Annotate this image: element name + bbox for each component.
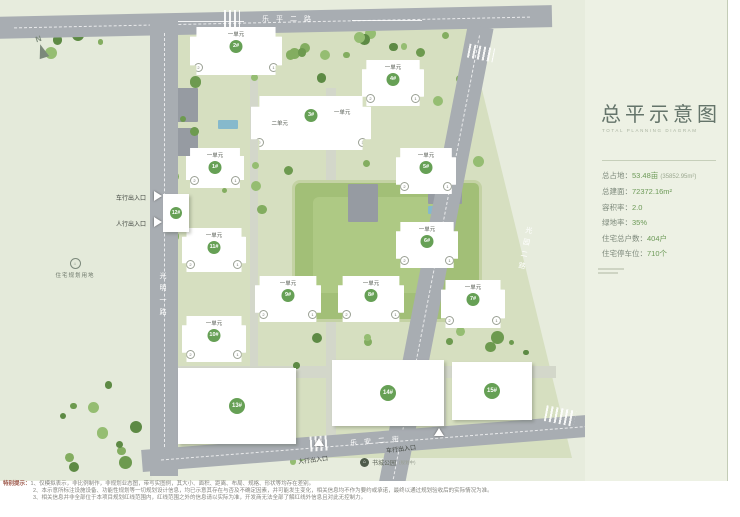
stat-row: 容积率：2.0: [602, 204, 724, 212]
unit-entry-dot: 2: [186, 260, 195, 269]
unit-label: 一单元: [255, 279, 321, 287]
fine-print-line: [598, 268, 624, 270]
stat-row: 绿地率：35%: [602, 219, 724, 227]
building-6: 一单元6#21: [396, 222, 458, 268]
unit-entry-dot: 2: [400, 182, 409, 191]
unit-label: 一单元: [441, 283, 505, 291]
building-15: 15#: [452, 362, 532, 420]
footnote-line: 特别提示：1、仅模拟表示，非比例制作，非规划业态图，带写实图例，其大小、面积、距…: [3, 481, 740, 488]
building-number-badge: 1#: [209, 161, 222, 174]
building-number-badge: 12#: [170, 207, 182, 219]
building-14: 14#: [332, 360, 444, 426]
entrance-arrow-icon: [154, 191, 162, 201]
footnotes: 特别提示：1、仅模拟表示，非比例制作，非规划业态图，带写实图例，其大小、面积、距…: [0, 481, 740, 517]
park-label: ⌂ 书城公园 (规划中): [360, 458, 416, 467]
unit-entry-dot: 1: [233, 350, 242, 359]
stat-value: 35%: [632, 218, 647, 227]
tree-icon: [119, 456, 132, 469]
unit-entry-dot: 2: [445, 316, 454, 325]
entrance-arrow-icon: [434, 428, 444, 436]
stat-label: 住宅停车位: [602, 249, 640, 258]
tree-icon: [473, 156, 484, 167]
tree-icon: [60, 413, 66, 419]
clubhouse-building: [348, 184, 378, 222]
road-label-left: 光明一路: [157, 272, 167, 320]
unit-entry-dot: 1: [492, 316, 501, 325]
building-number-badge: 6#: [421, 235, 434, 248]
stat-row: 总占地：53.48亩 (35852.95m²): [602, 172, 724, 180]
building-number-badge: 9#: [282, 289, 295, 302]
unit-label: 一单元: [182, 319, 246, 327]
tree-icon: [446, 338, 453, 345]
road-label-top: 乐平二路: [262, 14, 318, 24]
building-number-badge: 3#: [305, 109, 318, 122]
tree-icon: [98, 39, 104, 45]
stat-label: 容积率: [602, 203, 625, 212]
tree-icon: [180, 116, 186, 122]
stat-row: 总建面：72372.16m²: [602, 188, 724, 196]
stat-extra: (35852.95m²): [660, 174, 696, 180]
stat-value: 710个: [647, 249, 667, 258]
unit-label: 一单元: [338, 279, 404, 287]
entrance-arrow-icon: [154, 217, 162, 227]
unit-entry-dot: 1: [233, 260, 242, 269]
unit-entry-dot: 2: [366, 94, 375, 103]
tree-icon: [97, 427, 109, 439]
tree-icon: [284, 166, 293, 175]
plot-icon: ⌂: [70, 258, 81, 269]
entrance-arrow-icon: [314, 438, 324, 446]
stats-list: 总占地：53.48亩 (35852.95m²)总建面：72372.16m²容积率…: [602, 172, 724, 266]
tree-icon: [320, 50, 330, 60]
unit-entry-dot: 2: [342, 310, 351, 319]
building-number-badge: 15#: [484, 383, 500, 399]
tree-icon: [257, 205, 267, 215]
park-icon: ⌂: [360, 458, 369, 467]
building-number-badge: 4#: [387, 73, 400, 86]
tree-icon: [70, 403, 77, 410]
road-arrow-line: [352, 20, 422, 21]
tree-icon: [401, 43, 408, 50]
stat-row: 住宅停车位：710个: [602, 250, 724, 258]
tree-icon: [130, 421, 142, 433]
unit-label: 一单元: [190, 30, 282, 38]
building-13: 13#: [178, 368, 296, 444]
building-7: 一单元7#21: [441, 280, 505, 328]
stat-value: 53.48亩: [632, 171, 658, 180]
building-number-badge: 14#: [380, 385, 396, 401]
building-number-badge: 7#: [467, 293, 480, 306]
unit-entry-dot: 2: [400, 256, 409, 265]
tree-icon: [491, 331, 504, 344]
unit-label: 一单元: [362, 63, 424, 71]
building-5: 一单元5#21: [396, 148, 456, 194]
stat-value: 72372.16m²: [632, 187, 672, 196]
building-number-badge: 11#: [208, 241, 221, 254]
entrance-label-vehicle-west: 车行出入口: [92, 193, 146, 202]
unit-entry-dot: 1: [445, 256, 454, 265]
building-number-badge: 2#: [230, 40, 243, 53]
panel-subtitle: TOTAL PLANNING DIAGRAM: [602, 128, 698, 133]
unit-entry-dot: 2: [190, 176, 199, 185]
stat-row: 住宅总户数：404户: [602, 235, 724, 243]
stat-label: 总建面: [602, 187, 625, 196]
fine-print-line: [598, 272, 618, 274]
stat-label: 住宅总户数: [602, 234, 640, 243]
unit-entry-dot: 1: [391, 310, 400, 319]
unit-entry-dot: 1: [231, 176, 240, 185]
panel-divider: [602, 160, 716, 161]
building-number-badge: 13#: [229, 398, 245, 414]
building-3: 二单元一单元3#21: [251, 96, 371, 150]
stat-value: 2.0: [632, 203, 642, 212]
tree-icon: [523, 350, 529, 356]
building-number-badge: 10#: [208, 329, 221, 342]
unit-label: 一单元: [318, 108, 366, 116]
unit-entry-dot: 1: [411, 94, 420, 103]
tree-icon: [343, 52, 350, 59]
entrance-label-pedestrian-west: 人行出入口: [92, 219, 146, 228]
tree-icon: [65, 453, 74, 462]
stat-value: 404户: [647, 234, 667, 243]
tree-icon: [317, 73, 327, 83]
tree-icon: [389, 43, 398, 52]
building-2: 一单元2#21: [190, 27, 282, 75]
building-8: 一单元8#21: [338, 276, 404, 322]
building-12: 12#: [163, 194, 189, 232]
unit-entry-dot: 2: [186, 350, 195, 359]
panel-title: 总平示意图: [601, 98, 721, 127]
tree-icon: [364, 334, 371, 341]
water-feature: [218, 120, 238, 129]
west-area: [0, 24, 152, 480]
compass-needle-icon: [35, 43, 49, 59]
unit-entry-dot: 1: [443, 182, 452, 191]
tree-icon: [286, 50, 296, 60]
tree-icon: [105, 381, 112, 388]
master-plan-map: 乐平二路 光明一路 光园二路 乐安二街 一单元2#21一单元4#21二单元一单元…: [0, 0, 585, 481]
building-1: 一单元1#21: [186, 148, 244, 188]
stat-label: 总占地: [602, 171, 625, 180]
unit-label: 一单元: [396, 225, 458, 233]
building-10: 一单元10#21: [182, 316, 246, 362]
unit-entry-dot: 1: [308, 310, 317, 319]
road-left: [150, 24, 178, 476]
info-panel: 总平示意图 TOTAL PLANNING DIAGRAM 总占地：53.48亩 …: [585, 0, 728, 481]
unit-label: 一单元: [186, 151, 244, 159]
road-arrow-line: [178, 21, 244, 22]
site-plan-page: 乐平二路 光明一路 光园二路 乐安二街 一单元2#21一单元4#21二单元一单元…: [0, 0, 740, 517]
unit-entry-dot: 2: [259, 310, 268, 319]
building-9: 一单元9#21: [255, 276, 321, 322]
unit-label: 一单元: [182, 231, 246, 239]
stat-label: 绿地率: [602, 218, 625, 227]
building-4: 一单元4#21: [362, 60, 424, 106]
unit-label: 一单元: [396, 151, 456, 159]
footnote-line: 2、本示意所标注设施设备、功能性规划等一切规划设计信息，均已示意其存在与否及不确…: [33, 488, 740, 495]
residential-plot-label: ⌂ 住宅规划用地: [40, 258, 110, 279]
building-11: 一单元11#21: [182, 228, 246, 272]
building-number-badge: 8#: [365, 289, 378, 302]
tree-icon: [190, 76, 202, 88]
footnote-line: 3、相关信息并非全部位于本项目规划红线范围内，红线范围之外的信息请以实际为准，开…: [33, 495, 740, 502]
unit-label: 二单元: [256, 119, 304, 127]
building-number-badge: 5#: [420, 161, 433, 174]
